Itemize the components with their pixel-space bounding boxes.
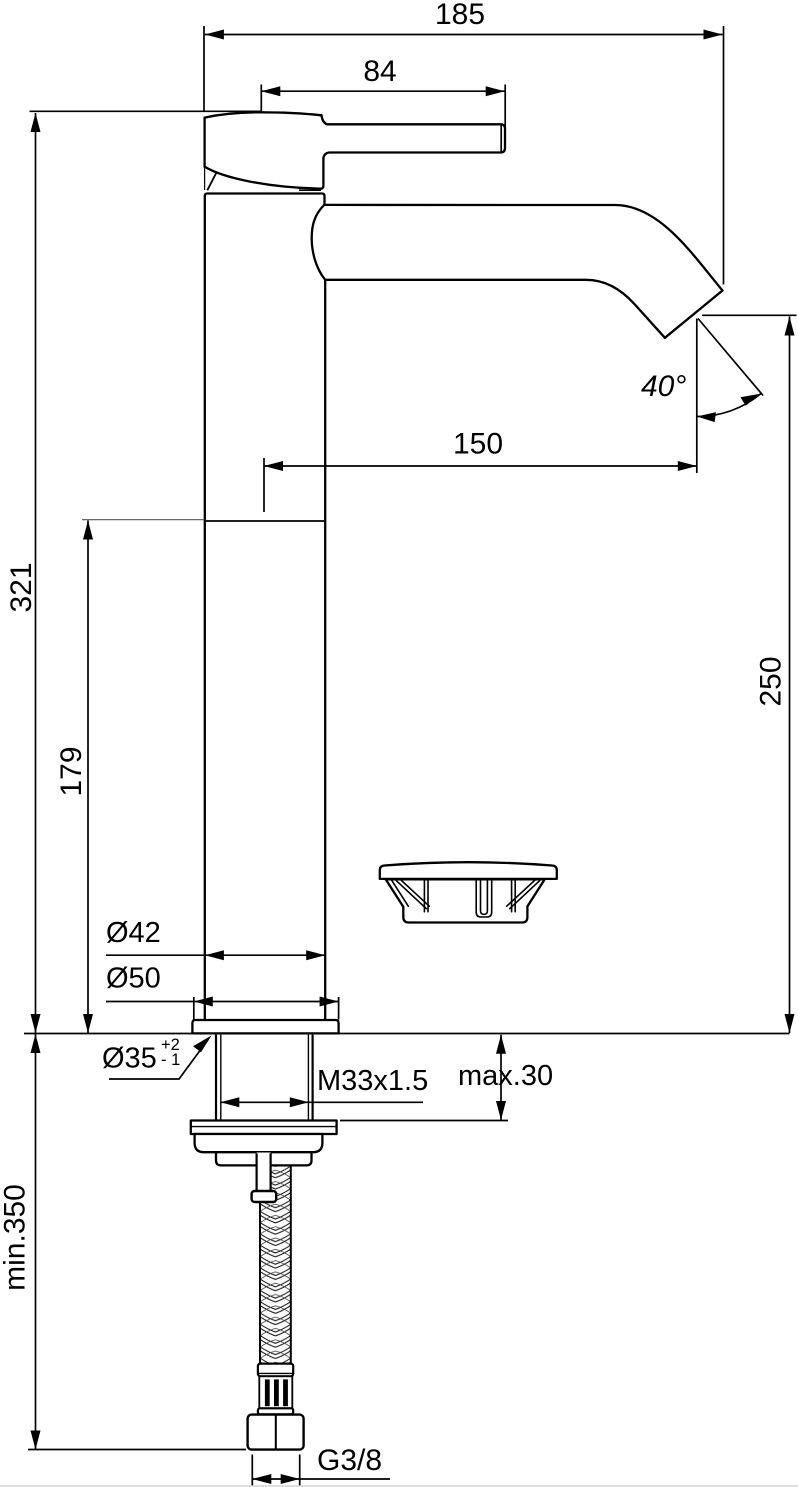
svg-text:Ø35: Ø35 — [102, 1043, 157, 1075]
svg-text:G3/8: G3/8 — [317, 1444, 382, 1477]
svg-text:40°: 40° — [641, 370, 686, 403]
svg-text:min.350: min.350 — [0, 1184, 32, 1291]
svg-text:250: 250 — [755, 656, 788, 706]
svg-text:Ø50: Ø50 — [106, 963, 161, 995]
svg-text:185: 185 — [435, 0, 485, 31]
svg-text:321: 321 — [5, 562, 38, 612]
svg-text:max.30: max.30 — [458, 1060, 553, 1092]
svg-text:84: 84 — [363, 55, 396, 88]
svg-text:150: 150 — [453, 428, 503, 461]
svg-text:179: 179 — [55, 746, 88, 796]
svg-text:Ø42: Ø42 — [106, 917, 161, 949]
svg-text:M33x1.5: M33x1.5 — [317, 1065, 428, 1097]
svg-text:- 1: - 1 — [161, 1051, 180, 1069]
